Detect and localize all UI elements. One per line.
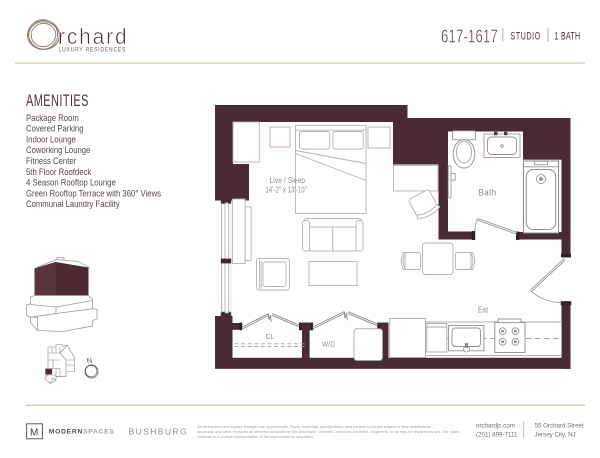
svg-text:5th Floor Roofdeck: 5th Floor Roofdeck (26, 167, 92, 177)
svg-text:Indoor Lounge: Indoor Lounge (26, 135, 76, 145)
svg-text:Eat: Eat (478, 307, 488, 315)
svg-text:Communal Laundry Facility: Communal Laundry Facility (26, 200, 120, 210)
svg-text:Coworking Lounge: Coworking Lounge (26, 146, 91, 156)
svg-text:(201) 899-7111: (201) 899-7111 (476, 431, 518, 438)
svg-text:M: M (30, 427, 38, 438)
svg-text:Bath: Bath (479, 187, 497, 198)
svg-text:STUDIO: STUDIO (511, 30, 541, 42)
svg-text:W/D: W/D (322, 341, 335, 348)
svg-text:14'-2" x 13'-10": 14'-2" x 13'-10" (266, 187, 308, 195)
svg-text:CL: CL (266, 334, 275, 341)
svg-text:N: N (86, 356, 93, 366)
svg-text:AMENITIES: AMENITIES (26, 92, 89, 111)
svg-text:Live / Sleep: Live / Sleep (270, 175, 306, 185)
svg-text:contents to a correct represen: contents to a correct representation of … (197, 434, 314, 439)
svg-text:rchard: rchard (58, 23, 128, 49)
svg-text:LUXURY RESIDENCES: LUXURY RESIDENCES (59, 47, 127, 54)
svg-text:1 BATH: 1 BATH (555, 30, 581, 42)
svg-text:Package Room: Package Room (26, 113, 79, 123)
svg-text:55 Orchard Street: 55 Orchard Street (535, 423, 584, 430)
svg-text:Jersey City, NJ: Jersey City, NJ (535, 431, 576, 438)
svg-text:Fitness Center: Fitness Center (26, 157, 76, 167)
svg-text:4 Season Rooftop Lounge: 4 Season Rooftop Lounge (26, 178, 116, 188)
svg-text:MODERNSPACES: MODERNSPACES (49, 429, 115, 436)
svg-text:BUSHBURG: BUSHBURG (129, 427, 189, 437)
svg-text:orchardjc.com: orchardjc.com (476, 423, 515, 430)
svg-text:Green Rooftop Terrace with 360: Green Rooftop Terrace with 360° Views (26, 189, 161, 199)
svg-text:Covered Parking: Covered Parking (26, 124, 84, 134)
svg-text:617-1617: 617-1617 (441, 26, 498, 47)
